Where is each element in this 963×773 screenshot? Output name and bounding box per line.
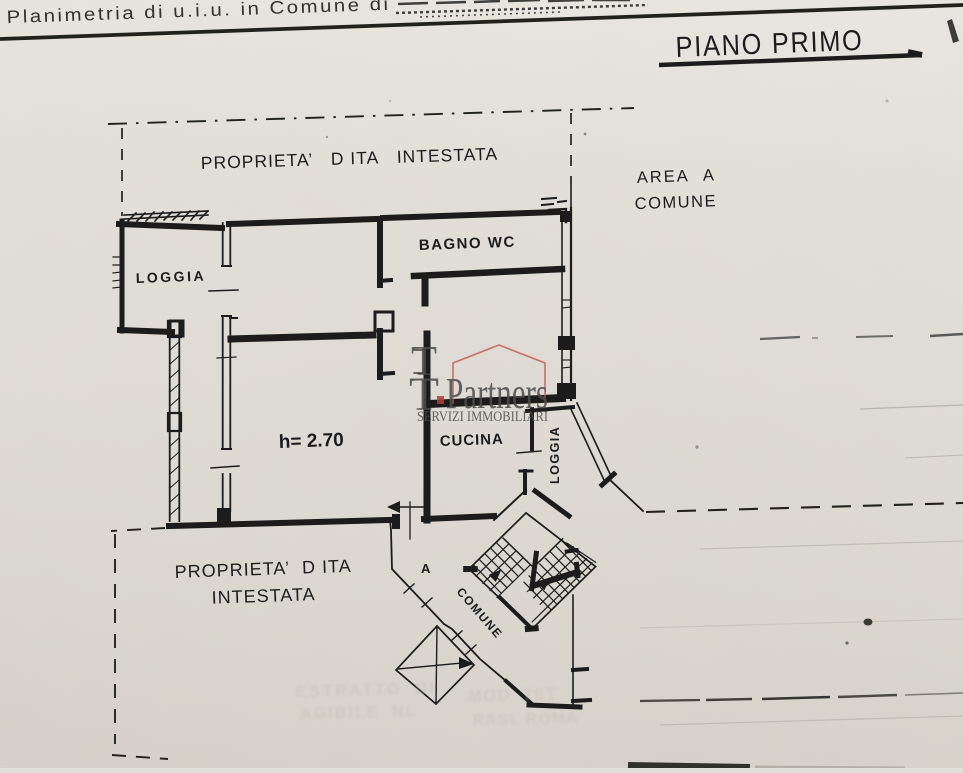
svg-text:LOGGIA: LOGGIA bbox=[548, 426, 562, 484]
svg-text:AREA A: AREA A bbox=[637, 166, 717, 187]
svg-text:BAGNO WC: BAGNO WC bbox=[419, 234, 517, 254]
svg-text:INTESTATA: INTESTATA bbox=[211, 584, 316, 608]
svg-text:ESTRATTO DI: ESTRATTO DI bbox=[296, 678, 437, 701]
svg-text:MOD TST: MOD TST bbox=[468, 684, 558, 705]
svg-text:COMUNE: COMUNE bbox=[634, 192, 717, 213]
svg-text:LOGGIA: LOGGIA bbox=[136, 268, 207, 286]
svg-text:A: A bbox=[421, 561, 431, 576]
svg-text:RASL ROMA: RASL ROMA bbox=[472, 710, 578, 730]
svg-text:CUCINA: CUCINA bbox=[440, 431, 505, 450]
svg-text:AGIBILE NL: AGIBILE NL bbox=[300, 703, 418, 723]
svg-text:h= 2.70: h= 2.70 bbox=[278, 430, 344, 453]
svg-text:SERVIZI IMMOBILIARI: SERVIZI IMMOBILIARI bbox=[417, 409, 548, 425]
